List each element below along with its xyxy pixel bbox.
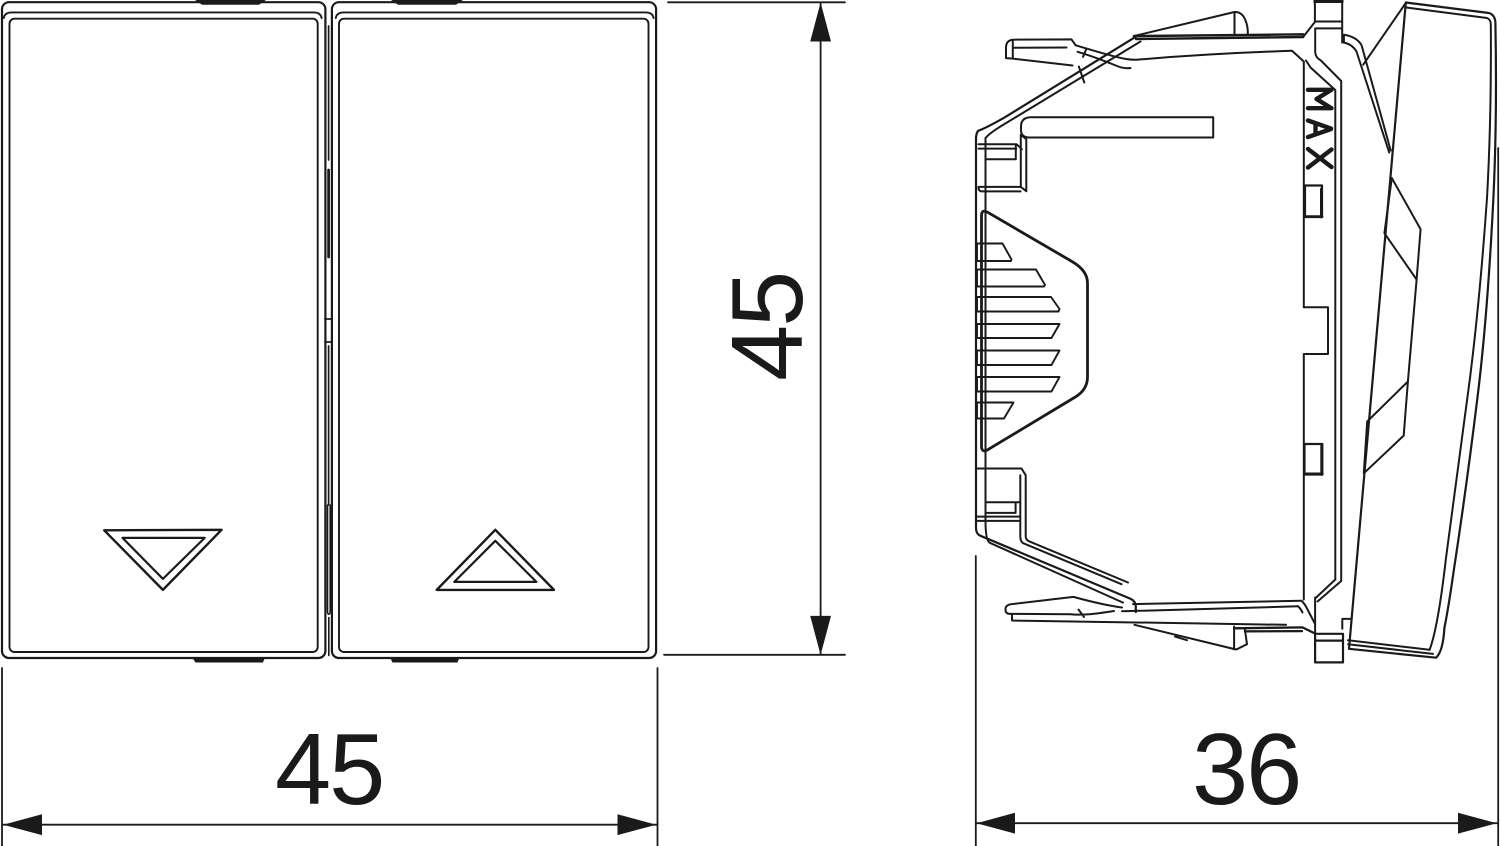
svg-text:36: 36 <box>1192 714 1300 826</box>
svg-text:45: 45 <box>275 714 383 826</box>
svg-text:45: 45 <box>712 273 824 381</box>
